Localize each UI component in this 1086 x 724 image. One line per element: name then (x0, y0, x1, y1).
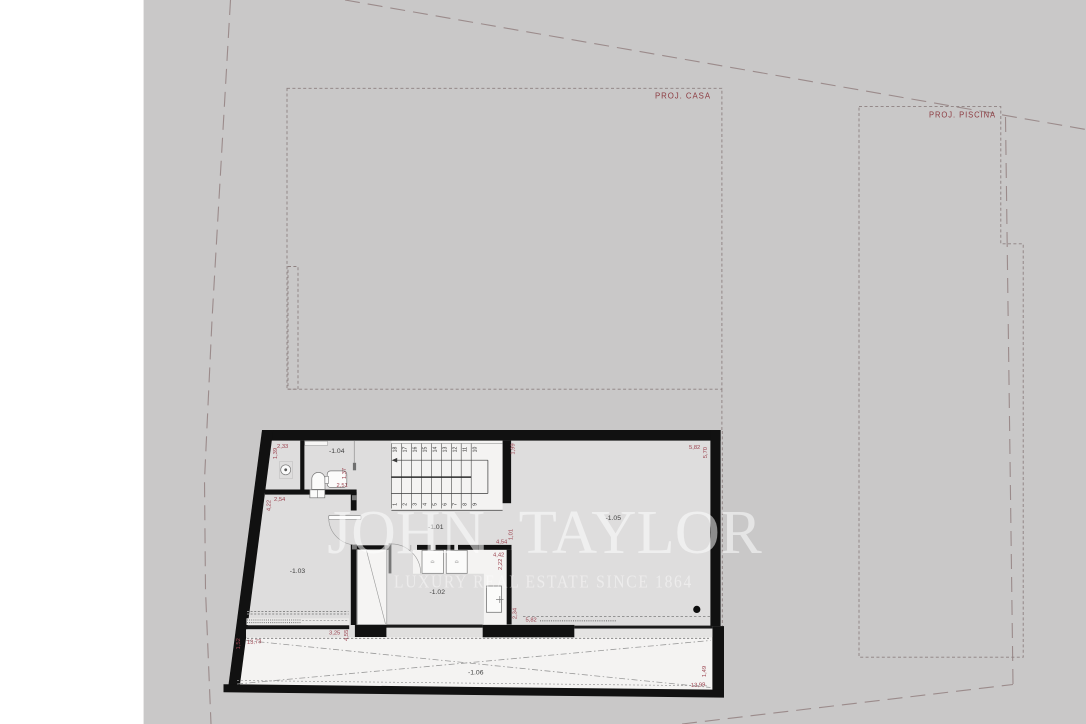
svg-text:4,55: 4,55 (344, 630, 350, 641)
svg-text:2,22: 2,22 (498, 559, 504, 570)
svg-text:-1.04: -1.04 (329, 448, 345, 455)
svg-text:-1.06: -1.06 (468, 669, 484, 676)
svg-text:PROJ. PISCINA: PROJ. PISCINA (929, 111, 996, 120)
svg-text:1,01: 1,01 (509, 529, 515, 540)
svg-text:4,54: 4,54 (496, 540, 508, 546)
svg-text:-1.03: -1.03 (290, 568, 306, 575)
svg-text:TAYLOR: TAYLOR (519, 499, 763, 567)
svg-text:2,54: 2,54 (274, 497, 286, 503)
svg-text:16: 16 (413, 447, 419, 453)
svg-text:15: 15 (423, 447, 429, 453)
svg-text:3,25: 3,25 (329, 631, 340, 637)
svg-text:2,51: 2,51 (337, 483, 348, 489)
svg-text:1,49: 1,49 (702, 666, 708, 677)
svg-text:13,73: 13,73 (247, 639, 262, 646)
svg-text:LUXURY REAL ESTATE SINCE 1864: LUXURY REAL ESTATE SINCE 1864 (394, 572, 693, 592)
svg-text:18: 18 (393, 447, 399, 453)
svg-text:4,42: 4,42 (493, 553, 504, 559)
svg-text:13,99: 13,99 (691, 682, 706, 689)
svg-text:10: 10 (472, 447, 478, 453)
svg-text:1,37: 1,37 (342, 468, 348, 479)
svg-text:PROJ. CASA: PROJ. CASA (655, 92, 711, 101)
svg-text:14: 14 (433, 447, 439, 453)
svg-text:17: 17 (403, 447, 409, 453)
svg-text:5,70: 5,70 (703, 447, 709, 458)
svg-text:5,82: 5,82 (526, 617, 537, 623)
svg-text:1,52: 1,52 (236, 638, 242, 649)
svg-text:1,99: 1,99 (511, 443, 517, 454)
svg-text:13: 13 (442, 447, 448, 453)
svg-text:1,39: 1,39 (273, 448, 279, 459)
svg-text:11: 11 (462, 447, 468, 452)
svg-text:2,34: 2,34 (512, 607, 518, 619)
svg-text:4,22: 4,22 (267, 500, 273, 511)
svg-text:5,82: 5,82 (689, 445, 700, 451)
svg-text:JOHN: JOHN (327, 499, 485, 567)
svg-text:12: 12 (452, 447, 458, 453)
